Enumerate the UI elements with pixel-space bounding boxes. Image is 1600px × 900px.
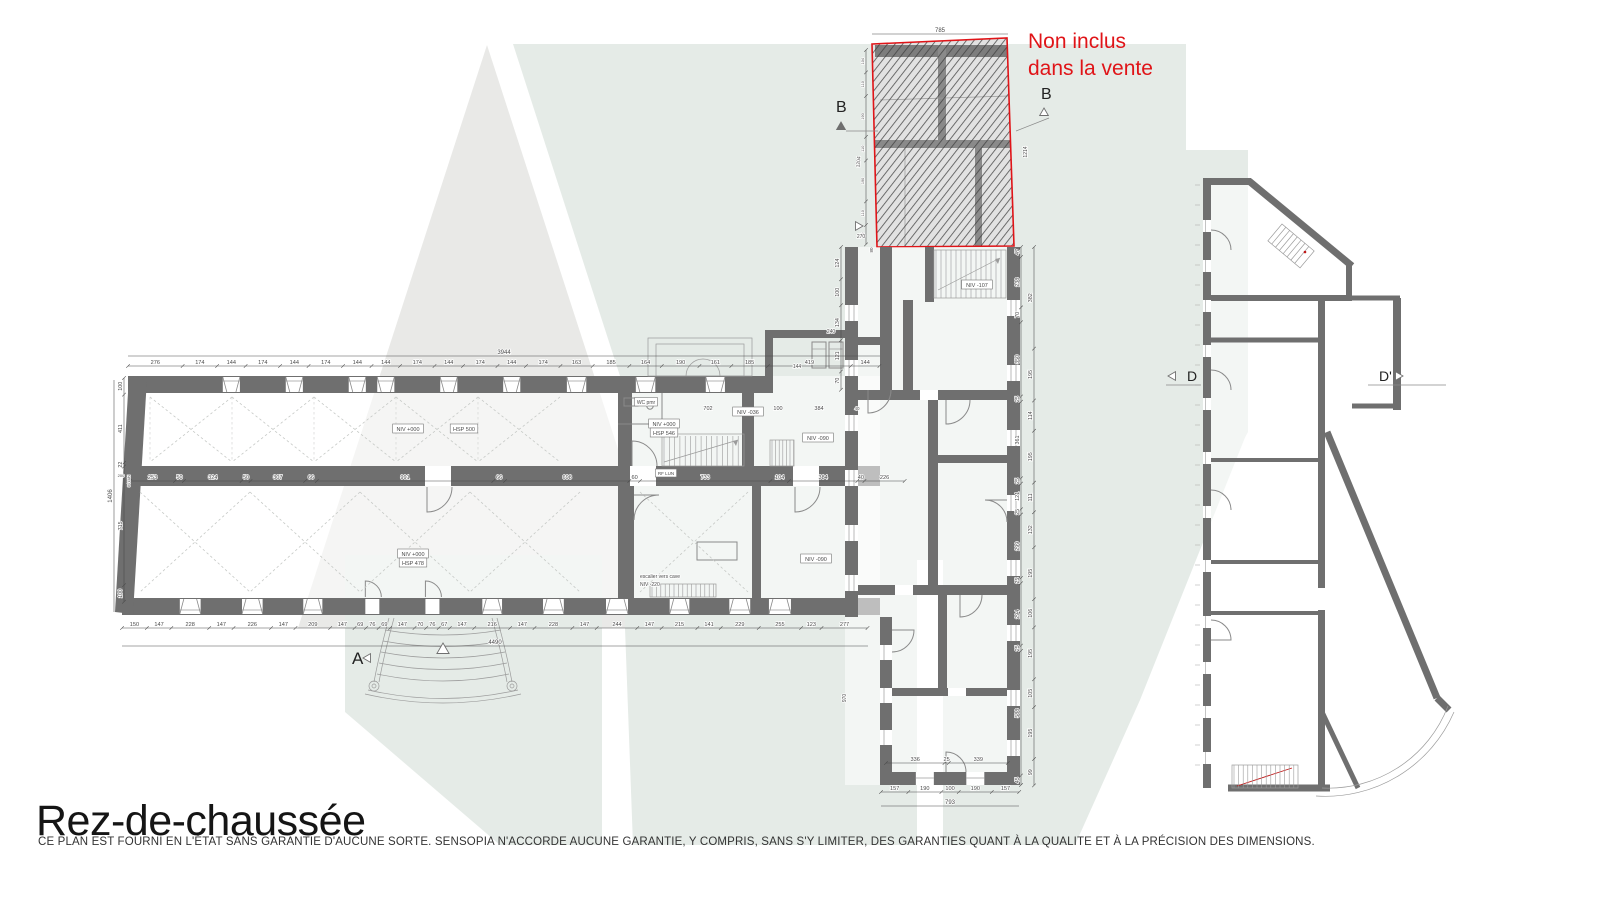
plan-label: 1214 [1023, 146, 1029, 157]
plan-label-text: NIV -220 [640, 582, 660, 588]
plan-label: escalier vers cave [640, 574, 680, 580]
dim-label: 100 [118, 382, 124, 391]
dim-label: 114 [1028, 411, 1034, 420]
dim-label: 25 [1015, 478, 1021, 484]
dim-label: 100 [945, 786, 954, 792]
dim-label: 174 [195, 360, 204, 366]
dim-label: 121 [1015, 492, 1021, 501]
plan-label-text: HSP 478 [402, 561, 424, 567]
dim-label: 110 [861, 146, 865, 152]
plan-label: 84 LUN [127, 475, 131, 487]
total-dim-785: 785 [872, 28, 1008, 34]
dim-label: 163 [572, 360, 581, 366]
dim-label: 276 [151, 360, 160, 366]
dim-label: 174 [476, 360, 485, 366]
plan-label-text: 384 [814, 406, 823, 412]
dim-label: 195 [1028, 370, 1034, 379]
dim-label: 76 [429, 622, 435, 628]
dim-label: 147 [398, 622, 407, 628]
plan-label-text: HSP 500 [453, 427, 475, 433]
plan-label: NIV -036 [733, 407, 764, 416]
dim-label: 25 [1015, 509, 1021, 515]
dim-label: 226 [248, 622, 257, 628]
right-building-plan [1203, 178, 1454, 796]
dim-label: 195 [1028, 452, 1034, 461]
dim-label: 174 [539, 360, 548, 366]
dim-label: 66 [308, 475, 314, 481]
dim-label: 22 [118, 462, 124, 468]
dim-label: 190 [861, 178, 865, 184]
dim-label: 147 [457, 622, 466, 628]
dim-label: 70 [417, 622, 423, 628]
dim-label: 174 [258, 360, 267, 366]
plan-label: 270 [857, 234, 866, 240]
dim-label: 715 [118, 521, 124, 530]
section-marker-letter: B [836, 99, 847, 116]
dim-label: 164 [641, 360, 650, 366]
plan-label-text: 200 [118, 473, 125, 478]
excluded-building [872, 38, 1014, 247]
dim-label: 411 [118, 424, 124, 433]
dim-label: 67 [441, 622, 447, 628]
dim-label: 190 [971, 786, 980, 792]
plan-label: HSP 546 [650, 428, 678, 437]
plan-label-text: 970 [842, 694, 848, 703]
dim-label: 132 [1028, 525, 1034, 534]
dim-label: 45 [1015, 777, 1021, 783]
dim-label: 144 [381, 360, 390, 366]
dim-label: 60 [632, 475, 638, 481]
dim-label: 147 [645, 622, 654, 628]
dim-label: 47 [1015, 249, 1021, 255]
dim-label: 185 [606, 360, 615, 366]
plan-label: 80 [869, 247, 874, 253]
dim-label: 50 [243, 475, 249, 481]
dim-label: 76 [369, 622, 375, 628]
dim-label: 147 [338, 622, 347, 628]
dim-label: 419 [805, 360, 814, 366]
plan-label-text: NIV -036 [737, 410, 759, 416]
plan-label-text: 80 [869, 247, 874, 253]
floor-plan-page: 2761741441741441741441441741441741441741… [0, 0, 1600, 900]
dim-label: 226 [880, 475, 889, 481]
dim-label: 215 [675, 622, 684, 628]
dim-label: 144 [353, 360, 362, 366]
dim-label: 110 [861, 210, 865, 216]
plan-label: HSP 478 [399, 558, 427, 567]
plan-label-text: WC pmr [637, 400, 656, 406]
dim-label: 294 [1015, 610, 1021, 619]
dim-label: 144 [507, 360, 516, 366]
plan-label-text: 1204 [856, 156, 863, 168]
dim-label: 100 [835, 288, 841, 297]
dim-label: 124 [835, 259, 841, 268]
dim-label: 195 [1028, 649, 1034, 658]
section-marker-letter: D [1187, 368, 1197, 384]
dim-label: 209 [308, 622, 317, 628]
plan-label-text: 144 [793, 364, 802, 370]
plan-label-text: 84 LUN [127, 475, 131, 487]
dim-label: 785 [935, 28, 946, 34]
plan-label: 1204 [856, 156, 863, 168]
dim-label: 1406 [108, 489, 114, 503]
dim-label: 40 [858, 475, 864, 481]
dim-label: 50 [176, 475, 182, 481]
dim-label: 110 [861, 81, 865, 87]
dim-label: 733 [701, 475, 710, 481]
dim-label: 104 [775, 475, 784, 481]
dim-label: 339 [974, 757, 983, 763]
dim-label: 244 [612, 622, 621, 628]
plan-label: NIV -090 [803, 433, 834, 442]
dim-label: 144 [290, 360, 299, 366]
dim-label: 111 [1028, 493, 1034, 501]
dim-label: 144 [444, 360, 453, 366]
dim-label: 4490 [488, 640, 502, 646]
dim-label: 144 [227, 360, 236, 366]
dim-label: 100 [118, 589, 124, 598]
plan-label: NIV -107 [962, 280, 993, 289]
not-included-note: Non inclus dans la vente [1028, 28, 1153, 82]
plan-label-text: RF LUN [658, 471, 674, 476]
dim-label: 174 [321, 360, 330, 366]
not-included-line2: dans la vente [1028, 55, 1153, 82]
plan-label: 100 [773, 406, 782, 412]
plan-label: NIV -090 [801, 554, 832, 563]
plan-label: 702 [703, 406, 712, 412]
dim-label: 238 [1015, 278, 1021, 287]
dim-label: 25 [1015, 396, 1021, 402]
plan-label-text: 240 [827, 329, 836, 335]
excluded-area-hatch [872, 38, 1014, 247]
plan-label-text: NIV -090 [807, 436, 829, 442]
dim-label: 147 [279, 622, 288, 628]
dim-label: 69 [381, 622, 387, 628]
dim-label: 277 [840, 622, 849, 628]
dim-label: 157 [1001, 786, 1010, 792]
dim-label: 25 [1015, 645, 1021, 651]
dim-label: 216 [488, 622, 497, 628]
dim-label: 69 [357, 622, 363, 628]
dim-label: 123 [807, 622, 816, 628]
dim-label: 25 [944, 757, 950, 763]
dim-label: 70 [1015, 312, 1021, 318]
plan-label-text: NIV +000 [652, 422, 675, 428]
dim-label: 228 [186, 622, 195, 628]
plan-label: NIV -220 [640, 582, 660, 588]
dim-label: 66 [496, 475, 502, 481]
dim-label: 991 [400, 475, 409, 481]
dim-label: 106 [1028, 609, 1034, 618]
dim-label: 147 [580, 622, 589, 628]
plan-label-text: 100 [773, 406, 782, 412]
plan-label-text: NIV +000 [396, 427, 419, 433]
dim-label: 99 [1028, 769, 1034, 775]
section-marker-letter: A [352, 649, 364, 668]
plan-label-text: 40 [854, 406, 860, 411]
plan-label: 144 [793, 364, 802, 370]
dim-label: 185 [745, 360, 754, 366]
dim-label: 150 [130, 622, 139, 628]
plan-label-text: NIV -090 [805, 557, 827, 563]
dim-label: 174 [413, 360, 422, 366]
dim-label: 299 [1015, 542, 1021, 551]
section-marker-Dp: D' [1368, 368, 1446, 385]
dim-label: 70 [835, 378, 841, 384]
dim-label: 228 [549, 622, 558, 628]
annex-wing-plan [845, 247, 1020, 785]
dim-label: 336 [911, 757, 920, 763]
plan-label-text: NIV -107 [966, 283, 988, 289]
dim-label: 588 [1015, 709, 1021, 718]
plan-label: 200 [118, 473, 125, 478]
dim-label: 105 [1028, 689, 1034, 698]
plan-label: NIV +000 [398, 549, 429, 558]
plan-label-text: 270 [857, 234, 866, 240]
dim-label: 147 [518, 622, 527, 628]
dim-label: 190 [861, 113, 865, 119]
plan-label: NIV +000 [393, 424, 424, 433]
plan-label: 384 [814, 406, 823, 412]
dim-label: 324 [208, 475, 217, 481]
plan-label-text: escalier vers cave [640, 574, 680, 580]
dim-label: 190 [920, 786, 929, 792]
dim-label: 161 [711, 360, 720, 366]
dim-label: 195 [1028, 729, 1034, 738]
plan-label-text: NIV +000 [401, 552, 424, 558]
dim-label: 229 [735, 622, 744, 628]
section-marker-letter: B [1041, 86, 1052, 103]
total-dim-1406: 1406 [108, 380, 114, 612]
plan-label-text: HSP 546 [653, 431, 675, 437]
plan-label: NIV +000 [649, 419, 680, 428]
dim-label: 157 [890, 786, 899, 792]
dim-label: 382 [1028, 293, 1034, 302]
plan-label-text: 702 [703, 406, 712, 412]
dim-label: 147 [217, 622, 226, 628]
plan-label: 240 [827, 329, 836, 335]
dim-label: 361 [1015, 436, 1021, 445]
dim-label: 350 [1015, 355, 1021, 364]
dim-label: 134 [835, 318, 841, 327]
dim-label: 793 [945, 800, 956, 806]
dim-label: 307 [273, 475, 282, 481]
dim-label: 195 [1028, 569, 1034, 578]
dim-label: 253 [148, 475, 157, 481]
dim-label: 3944 [497, 350, 511, 356]
dim-label: 384 [818, 475, 827, 481]
plan-label: HSP 500 [450, 424, 478, 433]
disclaimer-text: CE PLAN EST FOURNI EN L'ÉTAT SANS GARANT… [38, 836, 1315, 848]
not-included-line1: Non inclus [1028, 28, 1153, 55]
plan-label: WC pmr [635, 398, 658, 407]
plan-label: RF LUN [655, 469, 676, 477]
dim-label: 190 [676, 360, 685, 366]
dim-label: 25 [1015, 578, 1021, 584]
plan-label: 40 [854, 406, 860, 411]
section-marker-letter: D' [1379, 368, 1392, 384]
plan-label-text: 1214 [1023, 146, 1029, 157]
dim-label: 141 [704, 622, 713, 628]
dim-label: 147 [154, 622, 163, 628]
dim-label: 104 [861, 58, 865, 64]
dim-label: 144 [860, 360, 869, 366]
plan-label: 970 [842, 694, 848, 703]
dim-label: 698 [562, 475, 571, 481]
dim-label: 255 [775, 622, 784, 628]
